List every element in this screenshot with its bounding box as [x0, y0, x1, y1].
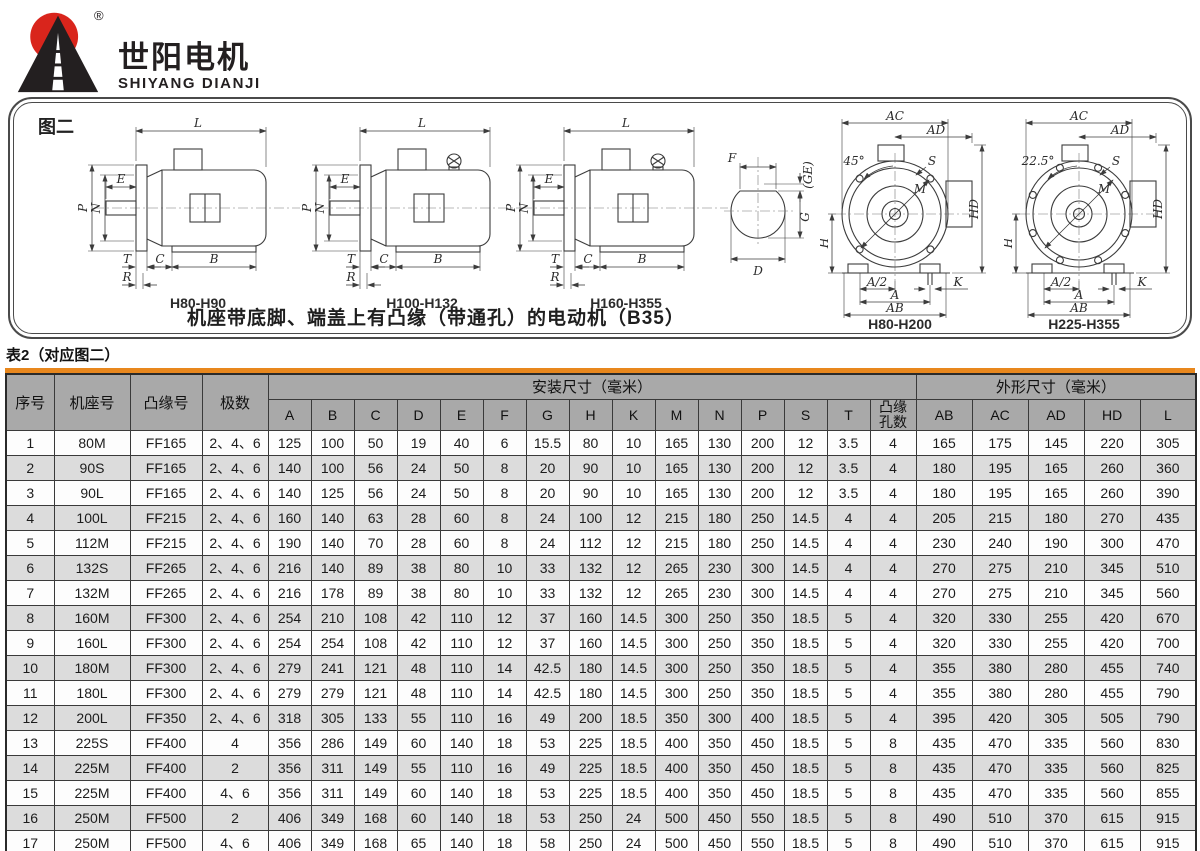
cell: 550	[741, 831, 784, 851]
cell: 240	[972, 531, 1028, 556]
svg-text:T: T	[123, 252, 132, 266]
cell: 160	[569, 631, 612, 656]
cell: 349	[311, 831, 354, 851]
svg-text:R: R	[121, 270, 131, 284]
cell: 210	[1028, 556, 1084, 581]
cell: 56	[354, 481, 397, 506]
svg-text:B: B	[637, 252, 647, 266]
svg-text:AC: AC	[1069, 109, 1088, 123]
cell: 70	[354, 531, 397, 556]
cell: 15	[6, 781, 54, 806]
cell: 18.5	[612, 781, 655, 806]
cell: 125	[268, 431, 311, 456]
cell: 615	[1084, 831, 1140, 851]
cell: 2、4、6	[202, 606, 268, 631]
drawing-front-view-1: AC AD 45° S M HD	[820, 109, 1000, 336]
cell: 4	[827, 581, 870, 606]
cell: 8	[870, 831, 916, 851]
cell: 370	[1028, 831, 1084, 851]
cell: 10	[612, 431, 655, 456]
column-header: AB	[916, 399, 972, 431]
cell: 80M	[54, 431, 130, 456]
cell: 241	[311, 656, 354, 681]
column-header: K	[612, 399, 655, 431]
cell: 260	[1084, 481, 1140, 506]
cell: 49	[526, 756, 569, 781]
cell: 132S	[54, 556, 130, 581]
cell: 406	[268, 831, 311, 851]
cell: 350	[698, 781, 741, 806]
table-row: 9160LFF3002、4、625425410842110123716014.5…	[6, 631, 1196, 656]
cell: 455	[1084, 656, 1140, 681]
cell: 2、4、6	[202, 556, 268, 581]
svg-text:T: T	[347, 252, 356, 266]
cell: 560	[1140, 581, 1196, 606]
cell: 112	[569, 531, 612, 556]
svg-text:C: C	[155, 252, 164, 266]
cell: 140	[268, 456, 311, 481]
svg-text:A: A	[890, 288, 900, 302]
cell: 5	[827, 631, 870, 656]
cell: 450	[698, 806, 741, 831]
cell: 15.5	[526, 431, 569, 456]
cell: 670	[1140, 606, 1196, 631]
cell: 5	[6, 531, 54, 556]
svg-text:M: M	[1097, 182, 1111, 196]
cell: 165	[1028, 481, 1084, 506]
cell: 2	[202, 756, 268, 781]
group-header-install: 安装尺寸（毫米）	[268, 374, 916, 399]
cell: 305	[1028, 706, 1084, 731]
cell: 400	[741, 706, 784, 731]
cell: 435	[916, 731, 972, 756]
cell: 165	[916, 431, 972, 456]
drawing-shaft-section: F (GE) G D	[716, 129, 821, 299]
shaft-section-drawing: F (GE) G D	[716, 129, 821, 294]
cell: 160	[569, 606, 612, 631]
cell: FF400	[130, 731, 202, 756]
cell: 28	[397, 531, 440, 556]
cell: FF500	[130, 806, 202, 831]
cell: 195	[972, 481, 1028, 506]
cell: 330	[972, 631, 1028, 656]
cell: 55	[397, 706, 440, 731]
cell: 24	[397, 481, 440, 506]
svg-text:N: N	[313, 202, 327, 214]
cell: 4	[870, 656, 916, 681]
cell: 435	[1140, 506, 1196, 531]
svg-text:A/2: A/2	[1050, 275, 1071, 289]
cell: 4、6	[202, 831, 268, 851]
cell: 5	[827, 656, 870, 681]
cell: 855	[1140, 781, 1196, 806]
drawing-side-view-2: L E P N T R	[302, 115, 530, 320]
cell: 20	[526, 456, 569, 481]
cell: 65	[397, 831, 440, 851]
table-row: 4100LFF2152、4、61601406328608241001221518…	[6, 506, 1196, 531]
column-header: 极数	[202, 374, 268, 431]
svg-text:S: S	[1112, 154, 1120, 168]
column-header: P	[741, 399, 784, 431]
cell: 311	[311, 756, 354, 781]
table-row: 14225MFF400235631114955110164922518.5400…	[6, 756, 1196, 781]
cell: 510	[972, 831, 1028, 851]
svg-text:AD: AD	[926, 123, 946, 137]
cell: 110	[440, 756, 483, 781]
cell: 4	[827, 556, 870, 581]
cell: 132	[569, 556, 612, 581]
cell: 260	[1084, 456, 1140, 481]
cell: 90S	[54, 456, 130, 481]
svg-text:B: B	[433, 252, 443, 266]
cell: 420	[1084, 606, 1140, 631]
column-header: E	[440, 399, 483, 431]
cell: 350	[741, 606, 784, 631]
cell: 16	[483, 706, 526, 731]
column-header: 序号	[6, 374, 54, 431]
svg-text:HD: HD	[1151, 199, 1165, 220]
cell: 350	[741, 656, 784, 681]
cell: 279	[311, 681, 354, 706]
cell: 254	[268, 631, 311, 656]
cell: 80	[440, 581, 483, 606]
cell: 160	[268, 506, 311, 531]
svg-text:M: M	[913, 182, 927, 196]
cell: 225M	[54, 756, 130, 781]
cell: 180	[698, 506, 741, 531]
cell: 560	[1084, 781, 1140, 806]
cell: 18	[483, 806, 526, 831]
svg-text:H80-H200: H80-H200	[868, 316, 932, 331]
cell: 18.5	[612, 731, 655, 756]
cell: 4	[870, 531, 916, 556]
cell: 37	[526, 606, 569, 631]
cell: 470	[1140, 531, 1196, 556]
cell: 8	[483, 481, 526, 506]
cell: 4	[870, 506, 916, 531]
cell: 279	[268, 656, 311, 681]
cell: 225M	[54, 781, 130, 806]
cell: 12	[784, 431, 827, 456]
cell: 178	[311, 581, 354, 606]
cell: 24	[612, 831, 655, 851]
cell: 18.5	[784, 656, 827, 681]
cell: 14.5	[612, 681, 655, 706]
cell: 12	[784, 481, 827, 506]
column-header: H	[569, 399, 612, 431]
cell: 350	[655, 706, 698, 731]
cell: 7	[6, 581, 54, 606]
cell: 18.5	[784, 806, 827, 831]
column-header: L	[1140, 399, 1196, 431]
cell: 8	[870, 806, 916, 831]
cell: 200L	[54, 706, 130, 731]
svg-text:AC: AC	[885, 109, 904, 123]
cell: 300	[741, 581, 784, 606]
cell: 38	[397, 581, 440, 606]
cell: 89	[354, 556, 397, 581]
cell: 14	[483, 681, 526, 706]
svg-text:C: C	[379, 252, 388, 266]
svg-text:L: L	[193, 116, 202, 130]
cell: 108	[354, 606, 397, 631]
cell: 2、4、6	[202, 531, 268, 556]
cell: 265	[655, 556, 698, 581]
cell: 250	[569, 806, 612, 831]
cell: 4、6	[202, 781, 268, 806]
svg-text:H: H	[820, 237, 831, 249]
motor-front-view-drawing: AC AD 45° S M HD	[820, 109, 1000, 331]
cell: 133	[354, 706, 397, 731]
cell: 4	[870, 556, 916, 581]
figure-label: 图二	[38, 113, 74, 139]
svg-text:N: N	[517, 202, 531, 214]
cell: 14.5	[612, 606, 655, 631]
table-row: 15225MFF4004、635631114960140185322518.54…	[6, 781, 1196, 806]
cell: 300	[655, 656, 698, 681]
cell: 28	[397, 506, 440, 531]
cell: 300	[655, 681, 698, 706]
cell: 400	[655, 756, 698, 781]
cell: 2、4、6	[202, 506, 268, 531]
cell: 275	[972, 581, 1028, 606]
svg-text:F: F	[727, 151, 737, 165]
cell: 2、4、6	[202, 706, 268, 731]
cell: 470	[972, 781, 1028, 806]
cell: 12	[612, 506, 655, 531]
cell: 10	[6, 656, 54, 681]
svg-text:H: H	[1004, 237, 1015, 249]
cell: 168	[354, 806, 397, 831]
cell: 145	[1028, 431, 1084, 456]
cell: 180	[569, 681, 612, 706]
column-header: A	[268, 399, 311, 431]
svg-text:E: E	[116, 172, 126, 186]
cell: FF300	[130, 606, 202, 631]
cell: 24	[397, 456, 440, 481]
cell: 2、4、6	[202, 481, 268, 506]
cell: 200	[741, 481, 784, 506]
cell: 510	[972, 806, 1028, 831]
cell: FF165	[130, 431, 202, 456]
cell: 4	[870, 581, 916, 606]
cell: 63	[354, 506, 397, 531]
cell: 435	[916, 781, 972, 806]
cell: 90L	[54, 481, 130, 506]
cell: 380	[972, 656, 1028, 681]
cell: 18.5	[784, 756, 827, 781]
svg-text:HD: HD	[967, 199, 981, 220]
cell: 4	[870, 431, 916, 456]
cell: 38	[397, 556, 440, 581]
cell: 10	[483, 556, 526, 581]
cell: 140	[268, 481, 311, 506]
cell: 8	[870, 731, 916, 756]
drawing-front-view-2: AC AD 22.5° S M HD	[1004, 109, 1184, 336]
cell: 180	[916, 481, 972, 506]
cell: 390	[1140, 481, 1196, 506]
cell: 50	[440, 481, 483, 506]
cell: 42	[397, 606, 440, 631]
cell: FF500	[130, 831, 202, 851]
cell: 13	[6, 731, 54, 756]
cell: 360	[1140, 456, 1196, 481]
cell: 42.5	[526, 681, 569, 706]
cell: 110	[440, 606, 483, 631]
cell: 550	[741, 806, 784, 831]
column-header: M	[655, 399, 698, 431]
cell: 165	[655, 456, 698, 481]
cell: 121	[354, 656, 397, 681]
cell: 50	[440, 456, 483, 481]
cell: 165	[1028, 456, 1084, 481]
svg-text:22.5°: 22.5°	[1021, 154, 1055, 168]
cell: 420	[972, 706, 1028, 731]
cell: 14.5	[784, 506, 827, 531]
cell: 8	[870, 756, 916, 781]
cell: 4	[202, 731, 268, 756]
cell: 250M	[54, 831, 130, 851]
cell: 49	[526, 706, 569, 731]
cell: 255	[1028, 631, 1084, 656]
table-row: 6132SFF2652、4、62161408938801033132122652…	[6, 556, 1196, 581]
cell: 12	[483, 606, 526, 631]
cell: 280	[1028, 681, 1084, 706]
cell: 350	[741, 631, 784, 656]
cell: 18.5	[784, 731, 827, 756]
cell: 2、4、6	[202, 431, 268, 456]
cell: 355	[916, 681, 972, 706]
cell: 300	[741, 556, 784, 581]
cell: 380	[972, 681, 1028, 706]
cell: 149	[354, 781, 397, 806]
cell: 406	[268, 806, 311, 831]
column-header: 凸缘孔数	[870, 399, 916, 431]
cell: 2	[6, 456, 54, 481]
cell: 160M	[54, 606, 130, 631]
cell: 335	[1028, 731, 1084, 756]
group-header-outline: 外形尺寸（毫米）	[916, 374, 1196, 399]
cell: 180L	[54, 681, 130, 706]
cell: 60	[440, 506, 483, 531]
cell: 4	[870, 481, 916, 506]
svg-text:AD: AD	[1110, 123, 1130, 137]
cell: 505	[1084, 706, 1140, 731]
cell: 180	[1028, 506, 1084, 531]
cell: 216	[268, 556, 311, 581]
cell: 490	[916, 806, 972, 831]
cell: 4	[827, 531, 870, 556]
brand-header: ® 世阳电机 SHIYANG DIANJI	[0, 0, 1200, 97]
cell: 490	[916, 831, 972, 851]
motor-side-view-drawing: L E P N T R	[78, 115, 306, 315]
cell: 33	[526, 581, 569, 606]
cell: 250	[698, 681, 741, 706]
cell: 100	[311, 456, 354, 481]
cell: 825	[1140, 756, 1196, 781]
cell: 280	[1028, 656, 1084, 681]
cell: 18	[483, 781, 526, 806]
cell: 349	[311, 806, 354, 831]
svg-text:R: R	[345, 270, 355, 284]
cell: 305	[1140, 431, 1196, 456]
column-header: N	[698, 399, 741, 431]
cell: 24	[526, 506, 569, 531]
cell: 200	[569, 706, 612, 731]
column-header: B	[311, 399, 354, 431]
cell: 210	[311, 606, 354, 631]
cell: 355	[916, 656, 972, 681]
cell: 560	[1084, 756, 1140, 781]
column-header: 凸缘号	[130, 374, 202, 431]
cell: 5	[827, 706, 870, 731]
svg-text:R: R	[549, 270, 559, 284]
cell: 790	[1140, 681, 1196, 706]
cell: FF300	[130, 656, 202, 681]
cell: 250	[698, 656, 741, 681]
cell: 286	[311, 731, 354, 756]
cell: 279	[268, 681, 311, 706]
cell: 250	[741, 506, 784, 531]
cell: 100L	[54, 506, 130, 531]
table-row: 16250MFF50024063491686014018532502450045…	[6, 806, 1196, 831]
cell: 2、4、6	[202, 631, 268, 656]
cell: 215	[972, 506, 1028, 531]
svg-text:K: K	[1137, 275, 1148, 289]
column-header: 机座号	[54, 374, 130, 431]
cell: 4	[870, 606, 916, 631]
cell: 180M	[54, 656, 130, 681]
cell: 6	[6, 556, 54, 581]
cell: 225	[569, 731, 612, 756]
cell: 4	[827, 506, 870, 531]
cell: 205	[916, 506, 972, 531]
table-row: 13225SFF400435628614960140185322518.5400…	[6, 731, 1196, 756]
cell: 305	[311, 706, 354, 731]
table-row: 8160MFF3002、4、625421010842110123716014.5…	[6, 606, 1196, 631]
cell: 356	[268, 781, 311, 806]
cell: 12	[612, 581, 655, 606]
cell: 190	[1028, 531, 1084, 556]
cell: 2、4、6	[202, 656, 268, 681]
table-row: 180MFF1652、4、6125100501940615.5801016513…	[6, 431, 1196, 456]
cell: 420	[1084, 631, 1140, 656]
cell: 270	[916, 581, 972, 606]
cell: 18.5	[784, 631, 827, 656]
cell: 300	[1084, 531, 1140, 556]
cell: 140	[311, 556, 354, 581]
cell: 400	[655, 781, 698, 806]
cell: 8	[483, 456, 526, 481]
svg-text:K: K	[953, 275, 964, 289]
cell: 42.5	[526, 656, 569, 681]
motor-side-view-drawing: L E P N T R	[506, 115, 734, 315]
cell: 8	[6, 606, 54, 631]
table-row: 17250MFF5004、640634916865140185825024500…	[6, 831, 1196, 851]
cell: 470	[972, 756, 1028, 781]
cell: 37	[526, 631, 569, 656]
cell: 56	[354, 456, 397, 481]
cell: 18.5	[784, 706, 827, 731]
cell: 12	[612, 531, 655, 556]
drawing-side-view-1: L E P N T R	[78, 115, 306, 320]
cell: 14	[483, 656, 526, 681]
cell: 130	[698, 481, 741, 506]
cell: 220	[1084, 431, 1140, 456]
svg-text:AB: AB	[885, 301, 904, 315]
cell: 270	[1084, 506, 1140, 531]
cell: 180	[916, 456, 972, 481]
